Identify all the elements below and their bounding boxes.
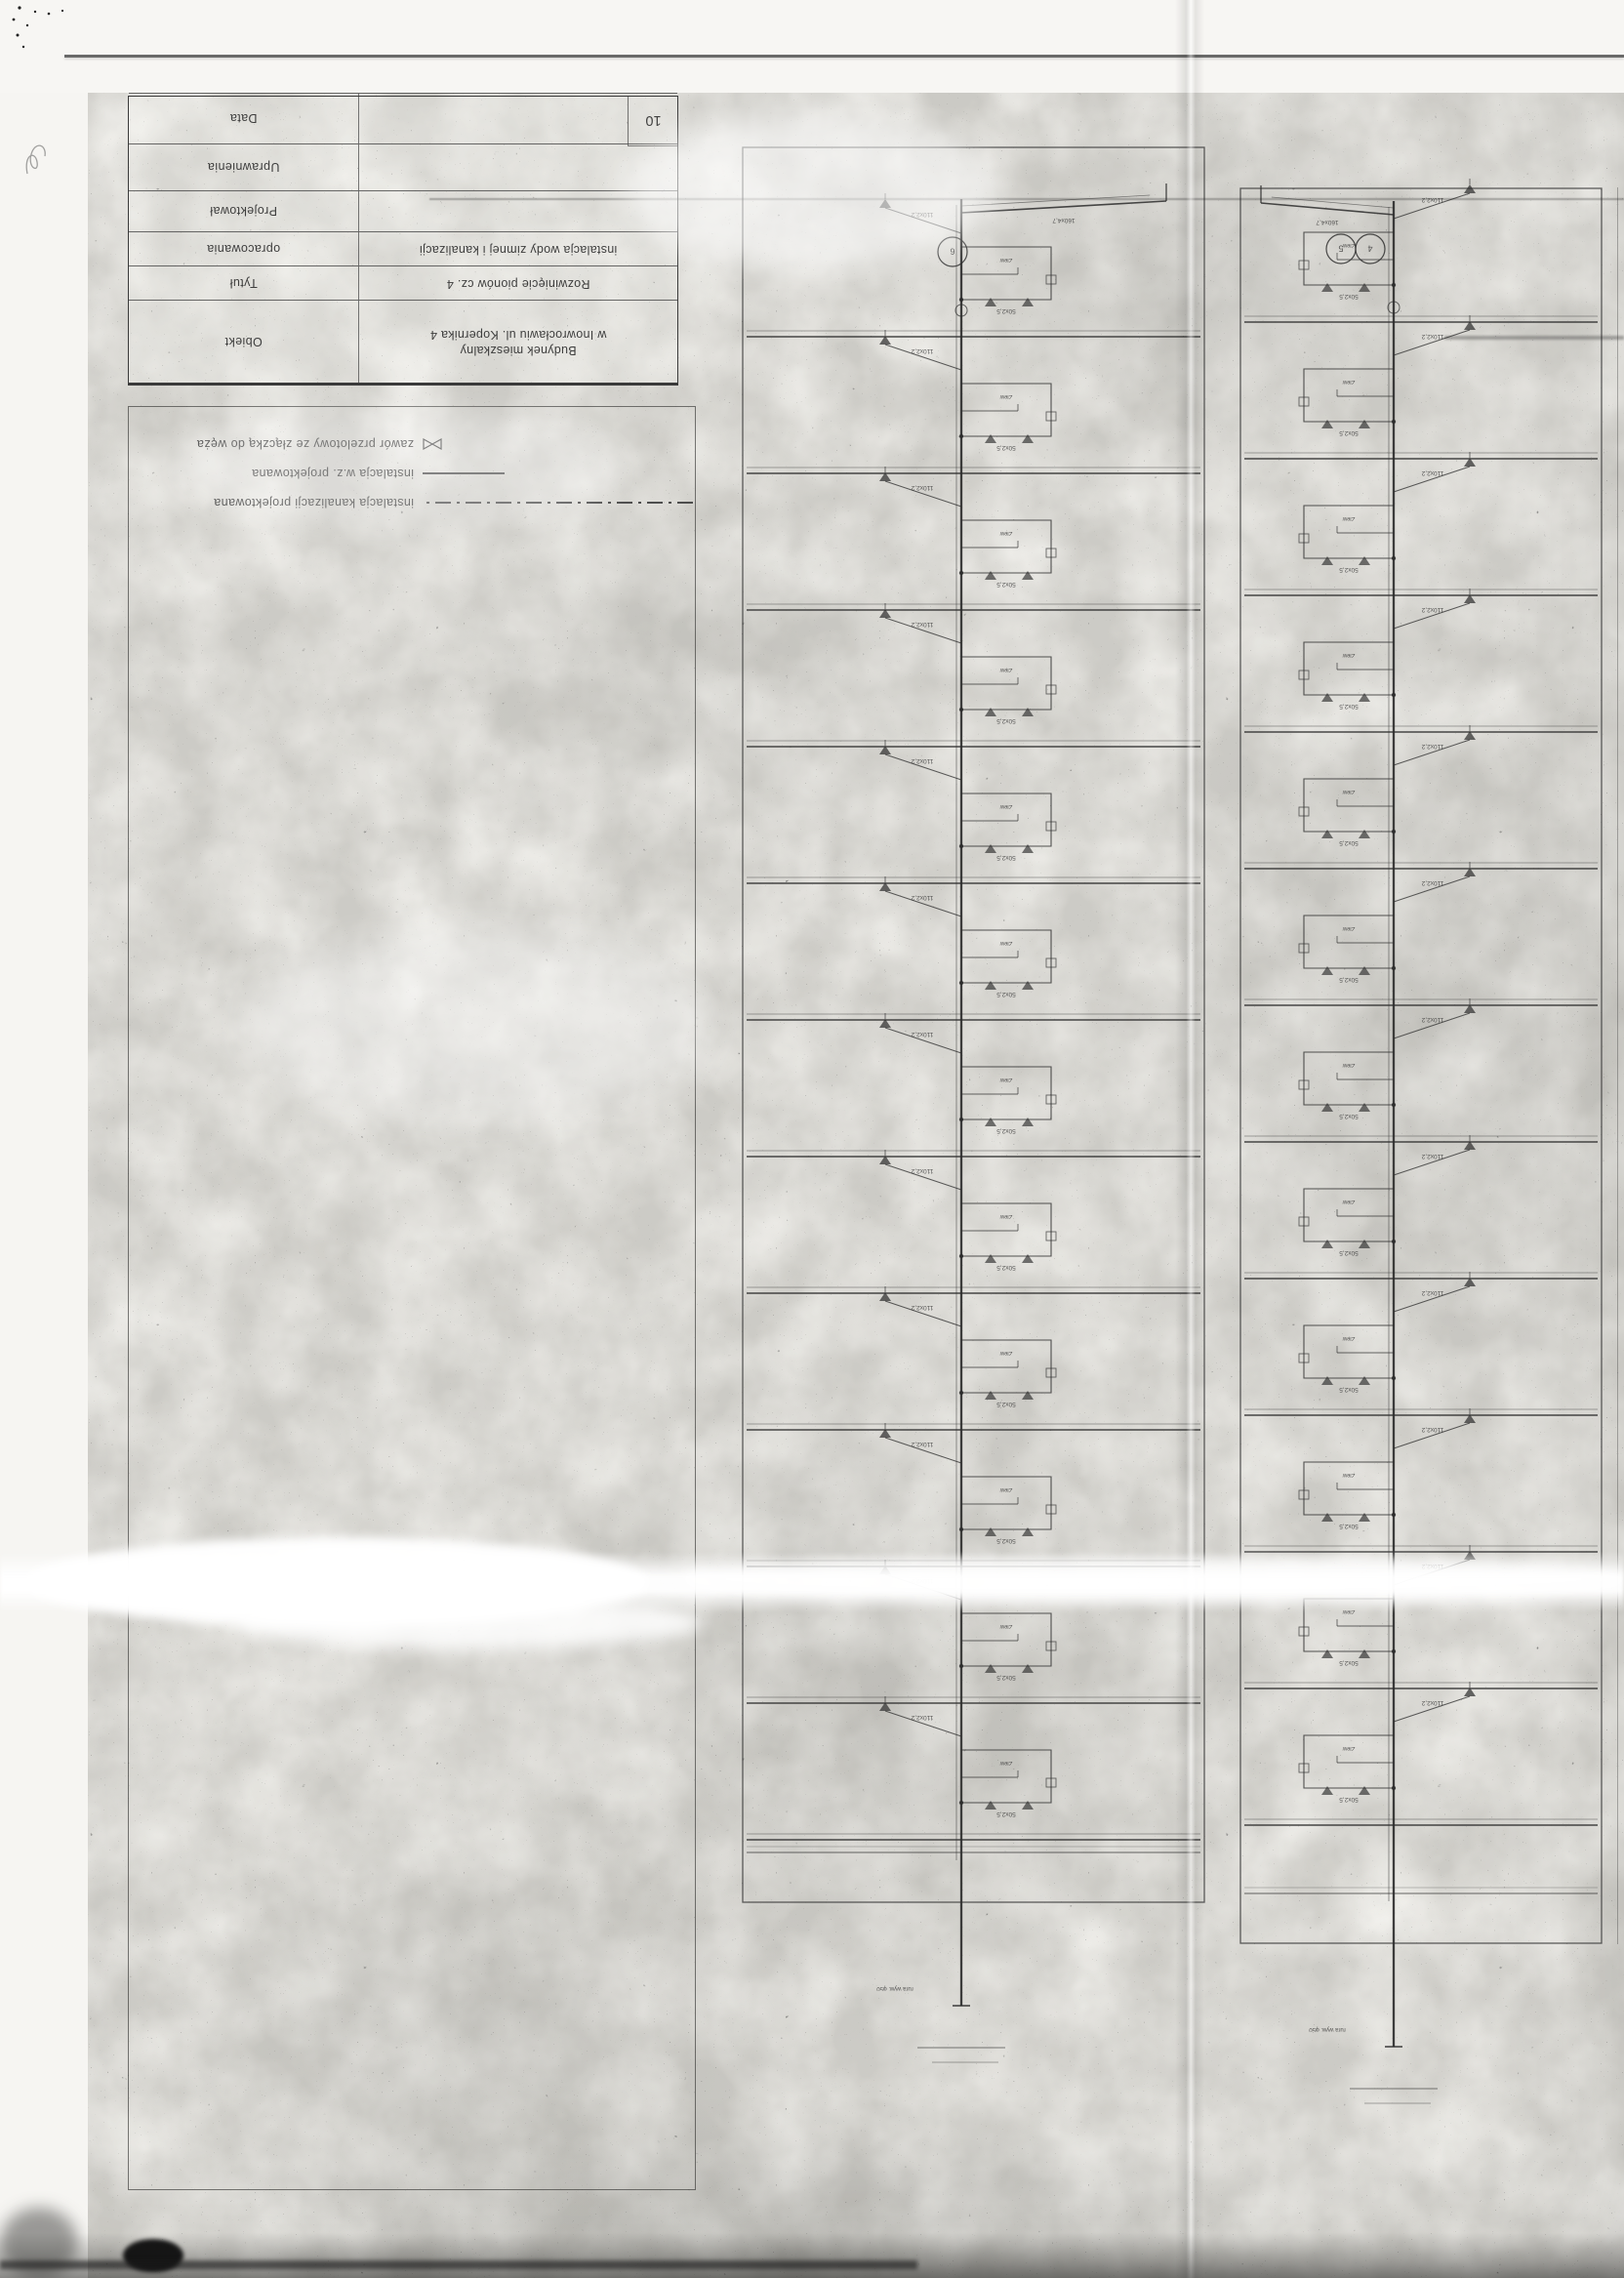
svg-text:110x2,2: 110x2,2 bbox=[1421, 196, 1443, 203]
svg-text:Zlew: Zlew bbox=[999, 1760, 1012, 1766]
svg-text:50x2,5: 50x2,5 bbox=[1339, 1796, 1359, 1803]
svg-text:Zlew: Zlew bbox=[999, 1623, 1012, 1629]
svg-text:160x4,7: 160x4,7 bbox=[1316, 219, 1339, 225]
svg-text:Zlew: Zlew bbox=[999, 803, 1012, 809]
svg-text:5: 5 bbox=[1338, 244, 1343, 254]
svg-text:50x2,5: 50x2,5 bbox=[996, 1810, 1016, 1817]
scope-label: opracowania bbox=[129, 232, 358, 265]
title-block-row: Projektował bbox=[129, 190, 677, 231]
svg-text:4: 4 bbox=[1367, 244, 1372, 254]
svg-text:50x2,5: 50x2,5 bbox=[1339, 839, 1359, 846]
svg-text:110x2,2: 110x2,2 bbox=[1421, 1563, 1443, 1569]
riser-panel-right: rura wyw. φ5050x2,5110x2,2Zlew50x2,5110x… bbox=[742, 146, 1205, 1903]
svg-text:Zlew: Zlew bbox=[999, 667, 1012, 672]
svg-text:110x2,2: 110x2,2 bbox=[1421, 1153, 1443, 1159]
svg-text:110x2,2: 110x2,2 bbox=[911, 621, 933, 628]
svg-text:50x2,5: 50x2,5 bbox=[1339, 1523, 1359, 1529]
svg-text:110x2,2: 110x2,2 bbox=[911, 1031, 933, 1037]
svg-text:Zlew: Zlew bbox=[1342, 1745, 1355, 1751]
svg-text:50x2,5: 50x2,5 bbox=[996, 991, 1016, 997]
sheet-number: 10 bbox=[628, 96, 678, 146]
svg-text:110x2,2: 110x2,2 bbox=[911, 1714, 933, 1721]
svg-text:Zlew: Zlew bbox=[1342, 515, 1355, 521]
license-label: Uprawnienia bbox=[129, 144, 358, 190]
svg-text:50x2,5: 50x2,5 bbox=[996, 444, 1016, 451]
designer-label: Projektował bbox=[129, 191, 358, 231]
svg-text:rura wyw. φ50: rura wyw. φ50 bbox=[1309, 2026, 1346, 2032]
solid-line-sample bbox=[423, 472, 505, 474]
title-block-row: Budynek mieszkalny w Inowrocławiu ul. Ko… bbox=[129, 300, 677, 383]
svg-text:50x2,5: 50x2,5 bbox=[1339, 703, 1359, 710]
legend-item: instalacja w.z. projektowana bbox=[166, 459, 693, 488]
designer-value bbox=[358, 191, 677, 231]
svg-text:110x2,2: 110x2,2 bbox=[911, 484, 933, 491]
svg-text:Zlew: Zlew bbox=[1342, 652, 1355, 658]
svg-text:Zlew: Zlew bbox=[999, 940, 1012, 946]
svg-text:110x2,2: 110x2,2 bbox=[911, 1304, 933, 1311]
svg-text:Zlew: Zlew bbox=[1342, 379, 1355, 385]
svg-text:Zlew: Zlew bbox=[1342, 242, 1355, 248]
svg-text:50x2,5: 50x2,5 bbox=[1339, 566, 1359, 573]
svg-text:50x2,5: 50x2,5 bbox=[1339, 1113, 1359, 1119]
scanned-drawing-page: instalacja kanalizacji projektowana inst… bbox=[0, 0, 1624, 2278]
sheet-content: instalacja kanalizacji projektowana inst… bbox=[0, 0, 1624, 2278]
svg-text:50x2,5: 50x2,5 bbox=[1339, 1659, 1359, 1666]
svg-text:50x2,5: 50x2,5 bbox=[996, 581, 1016, 588]
svg-text:50x2,5: 50x2,5 bbox=[996, 1264, 1016, 1271]
svg-text:110x2,2: 110x2,2 bbox=[1421, 1289, 1443, 1296]
title-block-row: Rozwinięcie pionów cz. 4 Tytuł bbox=[129, 265, 677, 300]
title-block-row: instalacja wody zimnej i kanalizacji opr… bbox=[129, 231, 677, 265]
svg-text:110x2,2: 110x2,2 bbox=[1421, 1426, 1443, 1433]
svg-text:Zlew: Zlew bbox=[1342, 789, 1355, 794]
svg-text:110x2,2: 110x2,2 bbox=[1421, 743, 1443, 750]
drawing-frame bbox=[128, 406, 696, 2190]
svg-text:Zlew: Zlew bbox=[1342, 1608, 1355, 1614]
svg-text:6: 6 bbox=[950, 247, 954, 257]
svg-text:50x2,5: 50x2,5 bbox=[996, 307, 1016, 314]
svg-text:Zlew: Zlew bbox=[1342, 1335, 1355, 1341]
svg-text:160x4,7: 160x4,7 bbox=[1052, 217, 1076, 224]
legend-item: zawór przelotowy ze złączką do węża bbox=[166, 429, 693, 459]
svg-text:50x2,5: 50x2,5 bbox=[996, 1537, 1016, 1544]
svg-text:50x2,5: 50x2,5 bbox=[1339, 976, 1359, 983]
svg-text:110x2,2: 110x2,2 bbox=[1421, 606, 1443, 613]
svg-text:Zlew: Zlew bbox=[1342, 1062, 1355, 1068]
svg-text:110x2,2: 110x2,2 bbox=[1421, 1016, 1443, 1023]
svg-text:Zlew: Zlew bbox=[999, 1350, 1012, 1356]
svg-text:110x2,2: 110x2,2 bbox=[1421, 879, 1443, 886]
title-block-row: Uprawnienia bbox=[129, 143, 677, 190]
svg-text:Zlew: Zlew bbox=[999, 1213, 1012, 1219]
title-block-row: Data bbox=[129, 93, 677, 143]
svg-text:Zlew: Zlew bbox=[999, 530, 1012, 536]
svg-text:Zlew: Zlew bbox=[1342, 925, 1355, 931]
valve-icon bbox=[423, 438, 442, 450]
legend-item-label: zawór przelotowy ze złączką do węża bbox=[197, 437, 414, 451]
title-value: Rozwinięcie pionów cz. 4 bbox=[358, 266, 677, 300]
svg-text:110x2,2: 110x2,2 bbox=[911, 894, 933, 901]
svg-text:50x2,5: 50x2,5 bbox=[1339, 1249, 1359, 1256]
svg-text:50x2,5: 50x2,5 bbox=[1339, 429, 1359, 436]
svg-text:110x2,2: 110x2,2 bbox=[911, 211, 933, 218]
svg-text:50x2,5: 50x2,5 bbox=[996, 1674, 1016, 1681]
svg-text:Zlew: Zlew bbox=[1342, 1472, 1355, 1478]
svg-text:110x2,2: 110x2,2 bbox=[911, 757, 933, 764]
legend-item-label: instalacja kanalizacji projektowana bbox=[214, 496, 414, 509]
dashdot-line-sample bbox=[423, 502, 693, 504]
riser-panel-left: rura wyw. φ5050x2,5110x2,2Zlew50x2,5110x… bbox=[1239, 187, 1603, 1944]
svg-text:50x2,5: 50x2,5 bbox=[996, 1127, 1016, 1134]
legend-item: instalacja kanalizacji projektowana bbox=[166, 488, 693, 517]
svg-text:110x2,2: 110x2,2 bbox=[911, 1577, 933, 1584]
svg-text:110x2,2: 110x2,2 bbox=[911, 1167, 933, 1174]
svg-text:50x2,5: 50x2,5 bbox=[996, 717, 1016, 724]
legend: instalacja kanalizacji projektowana inst… bbox=[166, 429, 693, 517]
adjacent-panel-edge bbox=[1617, 187, 1618, 1944]
legend-item-label: instalacja w.z. projektowana bbox=[252, 467, 414, 480]
svg-text:110x2,2: 110x2,2 bbox=[1421, 469, 1443, 476]
date-label: Data bbox=[129, 94, 358, 143]
title-label: Tytuł bbox=[129, 266, 358, 300]
svg-text:rura wyw. φ50: rura wyw. φ50 bbox=[876, 1985, 913, 1991]
svg-text:110x2,2: 110x2,2 bbox=[911, 1441, 933, 1447]
svg-text:50x2,5: 50x2,5 bbox=[996, 854, 1016, 861]
svg-text:Zlew: Zlew bbox=[1342, 1199, 1355, 1204]
license-value bbox=[358, 144, 677, 190]
svg-text:110x2,2: 110x2,2 bbox=[1421, 333, 1443, 340]
svg-text:110x2,2: 110x2,2 bbox=[1421, 1699, 1443, 1706]
title-block: Budynek mieszkalny w Inowrocławiu ul. Ko… bbox=[128, 96, 678, 386]
svg-text:110x2,2: 110x2,2 bbox=[911, 347, 933, 354]
object-label: Obiekt bbox=[129, 301, 358, 383]
svg-text:50x2,5: 50x2,5 bbox=[996, 1401, 1016, 1407]
svg-text:Zlew: Zlew bbox=[999, 1077, 1012, 1082]
svg-text:Zlew: Zlew bbox=[999, 393, 1012, 399]
svg-text:50x2,5: 50x2,5 bbox=[1339, 293, 1359, 300]
svg-text:50x2,5: 50x2,5 bbox=[1339, 1386, 1359, 1393]
object-value: Budynek mieszkalny w Inowrocławiu ul. Ko… bbox=[358, 301, 677, 383]
svg-text:Zlew: Zlew bbox=[999, 257, 1012, 263]
svg-text:Zlew: Zlew bbox=[999, 1486, 1012, 1492]
scope-value: instalacja wody zimnej i kanalizacji bbox=[358, 232, 677, 265]
